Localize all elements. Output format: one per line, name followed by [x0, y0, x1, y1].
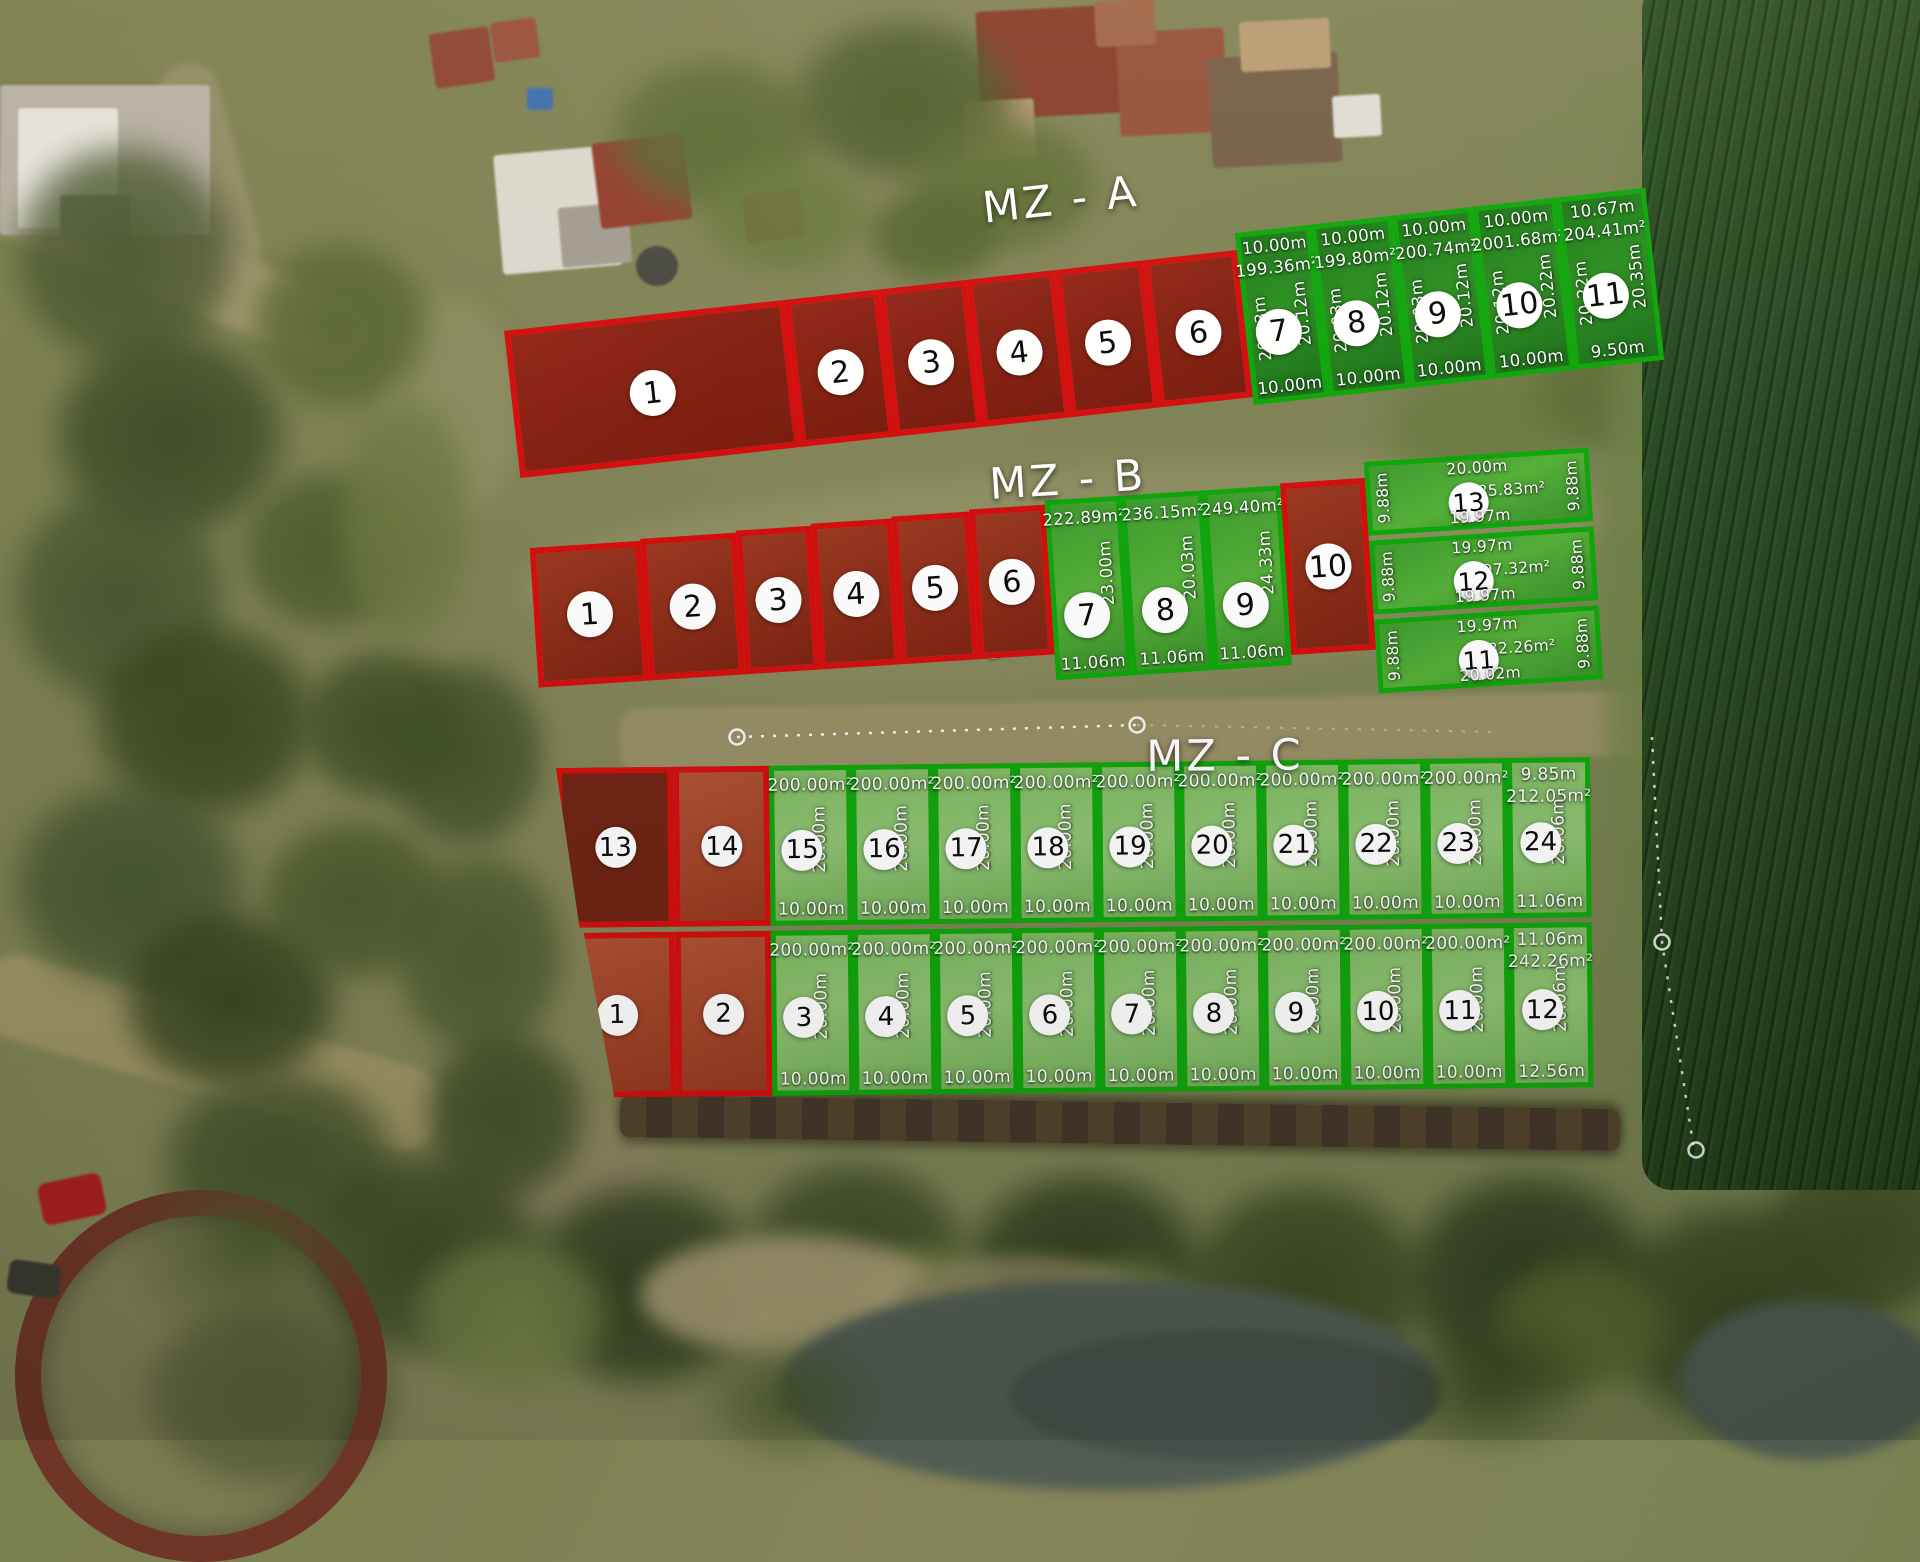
measure-side-right: 9.88m — [1567, 538, 1588, 590]
lot-mzc-24[interactable]: 9.85m212.05m²20.06m2411.06m — [1507, 757, 1592, 918]
lot-mzc-5[interactable]: 200.00m²20.00m510.00m — [935, 928, 1019, 1094]
measure-bottom: 10.00m — [1108, 1066, 1175, 1087]
lot-number-badge: 22 — [1355, 823, 1396, 864]
building-roof — [428, 26, 495, 89]
lot-mzc-2[interactable]: 2 — [675, 931, 773, 1097]
lot-mza-2[interactable]: 2 — [784, 290, 895, 448]
lot-number-badge: 13 — [595, 827, 636, 868]
measure-area: 200.00m² — [1343, 934, 1428, 955]
lot-number-badge: 2 — [815, 347, 866, 398]
measure-bottom: 20.02m — [1459, 663, 1521, 685]
lot-number-badge: 21 — [1273, 824, 1314, 865]
lot-mzb-13[interactable]: 20.00m185.83m²9.88m9.88m1319.97m — [1364, 447, 1593, 535]
measure-area: 249.40m² — [1201, 495, 1285, 519]
lot-number-badge: 6 — [1029, 994, 1070, 1035]
lot-number-badge: 6 — [1173, 307, 1224, 358]
lot-mzc-11[interactable]: 200.00m²20.00m1110.00m — [1427, 923, 1511, 1089]
lot-mzc-18[interactable]: 200.00m²20.00m1810.00m — [1015, 762, 1099, 923]
measure-bottom: 10.00m — [1354, 1063, 1421, 1084]
lot-number-badge: 1 — [565, 590, 614, 639]
lot-number-badge: 19 — [1109, 826, 1150, 867]
measure-area: 200.00m² — [1097, 936, 1182, 957]
lot-mzb-6[interactable]: 6 — [969, 505, 1055, 660]
lot-number-badge: 24 — [1520, 821, 1561, 862]
lot-mzc-21[interactable]: 200.00m²20.00m2110.00m — [1261, 760, 1345, 921]
lot-number-badge: 9 — [1275, 992, 1316, 1033]
lot-mzc-3[interactable]: 200.00m²20.00m310.00m — [771, 930, 855, 1096]
lot-mzb-2[interactable]: 2 — [640, 533, 745, 681]
measure-bottom: 10.00m — [1436, 1062, 1503, 1083]
lot-mzb-7[interactable]: 222.89m²23.00m711.06m — [1045, 496, 1132, 681]
lot-number-badge: 4 — [865, 996, 906, 1037]
lot-number-badge: 14 — [701, 826, 742, 867]
block-mz-c: 1314200.00m²20.00m1510.00m200.00m²20.00m… — [556, 757, 1593, 1098]
lot-mzb-4[interactable]: 4 — [811, 519, 901, 670]
measure-top: 20.00m — [1446, 457, 1508, 479]
measure-bottom: 10.00m — [1190, 1065, 1257, 1086]
lot-mzc-14[interactable]: 14 — [673, 766, 771, 927]
lot-mzb-12[interactable]: 19.97m197.32m²9.88m9.88m1219.97m — [1369, 526, 1598, 614]
hacienda-tower — [1094, 0, 1156, 48]
tree-canopy — [330, 380, 480, 660]
building-roof — [489, 17, 540, 63]
lot-number-badge: 3 — [906, 337, 957, 388]
lot-number-badge: 2 — [668, 582, 717, 631]
red-car — [36, 1172, 107, 1226]
measure-bottom: 10.00m — [942, 897, 1009, 918]
measure-area: 200.00m² — [1179, 936, 1264, 957]
measure-bottom: 10.00m — [780, 1069, 847, 1090]
measure-top: 11.06m — [1517, 929, 1584, 950]
lot-number-badge: 5 — [1082, 317, 1133, 368]
lot-number-badge: 1 — [627, 368, 678, 419]
measure-bottom: 10.00m — [1256, 372, 1323, 398]
lot-number-badge: 10 — [1357, 991, 1398, 1032]
measure-top: 19.97m — [1451, 536, 1513, 558]
measure-area: 222.89m² — [1042, 505, 1126, 529]
lot-mzc-17[interactable]: 200.00m²20.00m1710.00m — [933, 763, 1017, 924]
measure-area: 200.00m² — [1015, 937, 1100, 958]
lot-mzc-10[interactable]: 200.00m²20.00m1010.00m — [1345, 924, 1429, 1090]
lot-number-badge: 10 — [1304, 542, 1353, 591]
lot-number-badge: 15 — [782, 829, 823, 870]
lot-mzc-23[interactable]: 200.00m²20.00m2310.00m — [1425, 758, 1509, 919]
measure-bottom: 10.00m — [1024, 896, 1091, 917]
measure-bottom: 10.00m — [1416, 355, 1483, 381]
lot-number-badge: 11 — [1439, 990, 1480, 1031]
mzc-row-bottom: 12200.00m²20.00m310.00m200.00m²20.00m410… — [558, 922, 1594, 1098]
lot-mzb-10[interactable]: 10 — [1280, 478, 1376, 655]
measure-area: 200.00m² — [851, 939, 936, 960]
mzc-row-top: 1314200.00m²20.00m1510.00m200.00m²20.00m… — [556, 757, 1592, 928]
lot-mzb-5[interactable]: 5 — [891, 512, 978, 665]
lot-mzb-3[interactable]: 3 — [736, 526, 820, 675]
measure-bottom: 10.00m — [862, 1068, 929, 1089]
lot-mza-5[interactable]: 5 — [1055, 260, 1160, 417]
measure-bottom: 11.06m — [1139, 646, 1205, 669]
tree-canopy — [690, 1330, 890, 1470]
lot-number-badge: 12 — [1522, 989, 1563, 1030]
lot-number-badge: 5 — [947, 995, 988, 1036]
measure-bottom: 10.00m — [1270, 894, 1337, 915]
lot-mzc-20[interactable]: 200.00m²20.00m2010.00m — [1179, 761, 1263, 922]
measure-bottom: 11.06m — [1219, 641, 1285, 664]
lot-number-badge: 8 — [1193, 993, 1234, 1034]
lot-number-badge: 23 — [1437, 822, 1478, 863]
lot-number-badge: 1 — [596, 994, 637, 1035]
stacked-lot-column: 20.00m185.83m²9.88m9.88m1319.97m19.97m19… — [1364, 447, 1604, 693]
lot-number-badge: 20 — [1191, 825, 1232, 866]
measure-bottom: 10.00m — [778, 899, 845, 920]
measure-area: 200.00m² — [1261, 935, 1346, 956]
measure-area: 200.00m² — [1425, 933, 1510, 954]
lot-mza-1[interactable]: 1 — [504, 300, 801, 478]
measure-side-right: 20.03m — [1177, 535, 1200, 601]
lot-number-badge: 16 — [864, 828, 905, 869]
block-title-mz-b: MZ - B — [988, 450, 1148, 509]
lot-number-badge: 17 — [946, 827, 987, 868]
lot-number-badge: 7 — [1111, 993, 1152, 1034]
lot-mzc-4[interactable]: 200.00m²20.00m410.00m — [853, 929, 937, 1095]
lot-mza-3[interactable]: 3 — [879, 280, 983, 437]
measure-bottom: 10.00m — [1026, 1066, 1093, 1087]
measure-bottom: 10.00m — [1352, 893, 1419, 914]
hacienda-wall — [1239, 18, 1331, 73]
lot-mzc-16[interactable]: 200.00m²20.00m1610.00m — [851, 764, 935, 925]
measure-area: 200.00m² — [849, 774, 934, 795]
lot-mzc-13[interactable]: 13 — [556, 767, 675, 928]
tree-canopy — [690, 150, 880, 280]
tree-canopy — [400, 1230, 620, 1400]
pond-water — [1010, 1330, 1440, 1460]
measure-area: 236.15m² — [1121, 500, 1205, 524]
measure-area: 200.00m² — [931, 773, 1016, 794]
lot-mzc-7[interactable]: 200.00m²20.00m710.00m — [1099, 926, 1183, 1092]
lot-mzc-8[interactable]: 200.00m²20.00m810.00m — [1181, 926, 1265, 1092]
measure-bottom: 11.06m — [1516, 891, 1583, 912]
lot-mzc-12[interactable]: 11.06m242.26m²20.06m1212.56m — [1509, 922, 1594, 1088]
measure-bottom: 9.50m — [1590, 337, 1646, 362]
lot-number-badge: 3 — [754, 576, 803, 625]
measure-top: 9.85m — [1521, 764, 1577, 785]
trampoline — [636, 246, 678, 286]
measure-area: 200.00m² — [767, 775, 852, 796]
measure-side-left: 9.88m — [1378, 551, 1399, 603]
measure-bottom: 10.00m — [944, 1067, 1011, 1088]
measure-side-right: 9.88m — [1572, 617, 1593, 669]
measure-bottom: 10.00m — [1188, 895, 1255, 916]
lot-mzb-9[interactable]: 249.40m²24.33m911.06m — [1202, 485, 1291, 670]
lot-mzc-9[interactable]: 200.00m²20.00m910.00m — [1263, 925, 1347, 1091]
measure-bottom: 10.00m — [1434, 892, 1501, 913]
measure-area: 200.00m² — [933, 938, 1018, 959]
tree-canopy — [1380, 1310, 1600, 1460]
measure-area: 200.00m² — [769, 940, 854, 961]
lot-mzc-22[interactable]: 200.00m²20.00m2210.00m — [1343, 759, 1427, 920]
measure-area: 200.00m² — [1013, 772, 1098, 793]
lot-number-badge: 4 — [994, 327, 1045, 378]
measure-bottom: 11.06m — [1060, 651, 1126, 674]
lot-mzc-19[interactable]: 200.00m²20.00m1910.00m — [1097, 761, 1181, 922]
lot-number-badge: 4 — [831, 570, 880, 619]
lot-mzc-6[interactable]: 200.00m²20.00m610.00m — [1017, 927, 1101, 1093]
crop-field — [1642, 0, 1920, 1190]
pool — [527, 88, 553, 110]
lot-number-badge: 5 — [911, 563, 960, 612]
measure-bottom: 10.00m — [1272, 1064, 1339, 1085]
lot-mzc-1[interactable]: 1 — [558, 932, 677, 1098]
dark-car — [6, 1259, 62, 1300]
lot-number-badge: 2 — [703, 993, 744, 1034]
measure-area: 200.00m² — [1341, 769, 1426, 790]
stone-wall — [620, 1095, 1620, 1151]
measure-side-left: 9.88m — [1373, 472, 1394, 524]
lot-mza-4[interactable]: 4 — [966, 270, 1071, 427]
lot-mzb-8[interactable]: 236.15m²20.03m811.06m — [1121, 490, 1214, 675]
tree-canopy — [120, 1150, 380, 1350]
lot-mza-11[interactable]: 10.67m204.41m²20.22m20.35m119.50m — [1556, 188, 1664, 370]
measure-bottom: 19.97m — [1454, 584, 1516, 606]
measure-bottom: 10.00m — [1498, 346, 1565, 372]
lot-number-badge: 6 — [987, 557, 1036, 606]
measure-bottom: 19.97m — [1449, 506, 1511, 528]
measure-bottom: 10.00m — [1335, 364, 1402, 390]
measure-side-left: 9.88m — [1383, 629, 1404, 681]
lot-mzb-1[interactable]: 1 — [530, 541, 650, 688]
lot-mzc-15[interactable]: 200.00m²20.00m1510.00m — [769, 765, 853, 926]
block-title-mz-c: MZ - C — [1146, 730, 1304, 782]
measure-bottom: 12.56m — [1518, 1061, 1585, 1082]
measure-top: 19.97m — [1456, 614, 1518, 636]
lot-mzb-11[interactable]: 19.97m182.26m²9.88m9.88m1120.02m — [1374, 605, 1603, 693]
measure-side-right: 9.88m — [1562, 459, 1583, 511]
tree-canopy — [375, 650, 555, 860]
measure-bottom: 10.00m — [1106, 896, 1173, 917]
lot-number-badge: 18 — [1028, 827, 1069, 868]
measure-area: 200.00m² — [1423, 768, 1508, 789]
building-roof — [1332, 94, 1382, 138]
measure-bottom: 10.00m — [860, 898, 927, 919]
lot-number-badge: 3 — [783, 997, 824, 1038]
